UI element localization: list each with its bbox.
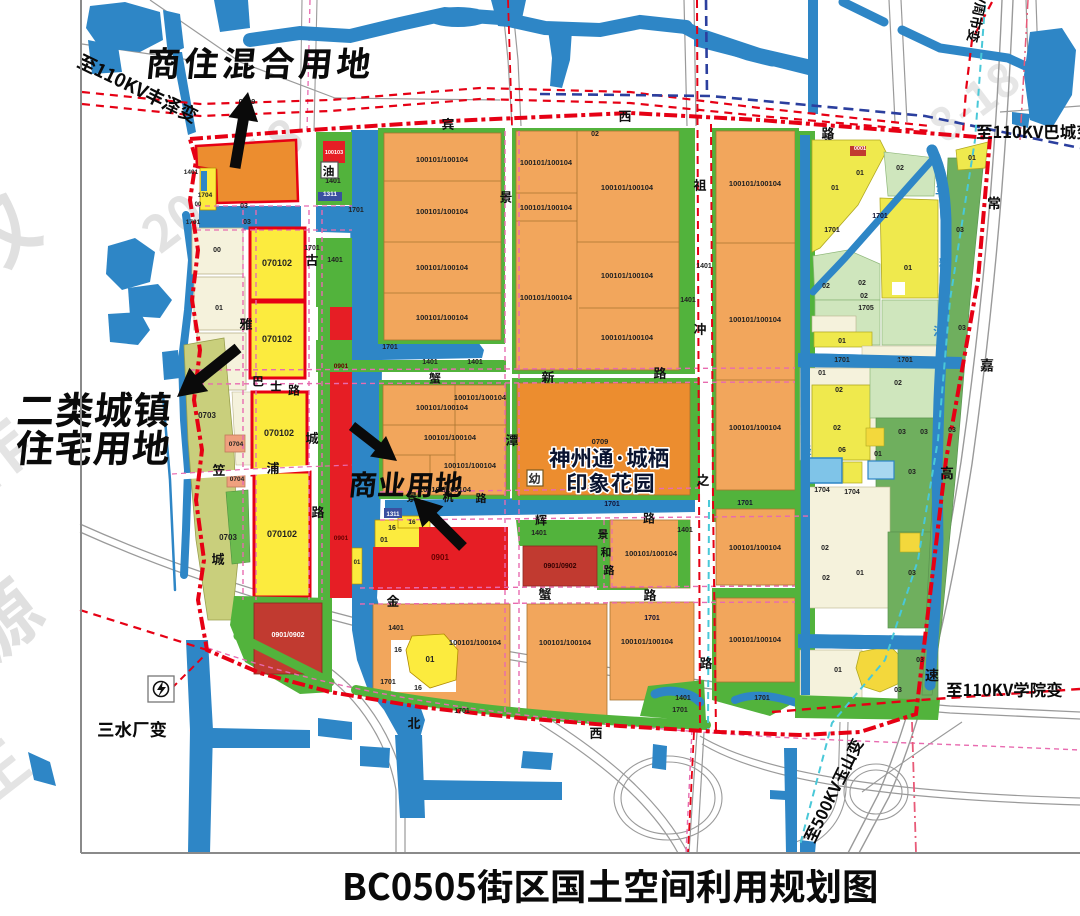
svg-text:100101/100104: 100101/100104 — [416, 403, 469, 412]
svg-text:1701: 1701 — [304, 245, 320, 252]
svg-text:0704: 0704 — [230, 476, 245, 483]
svg-text:00: 00 — [213, 247, 221, 254]
svg-text:03: 03 — [956, 227, 964, 234]
svg-text:1401: 1401 — [680, 297, 696, 304]
svg-text:1401: 1401 — [675, 695, 691, 702]
svg-text:1701: 1701 — [824, 227, 840, 234]
svg-text:1311: 1311 — [386, 512, 400, 518]
svg-text:03: 03 — [908, 469, 916, 476]
svg-text:100101/100104: 100101/100104 — [416, 313, 469, 322]
svg-text:03: 03 — [243, 219, 251, 226]
svg-text:01: 01 — [380, 537, 388, 544]
svg-text:01: 01 — [856, 570, 864, 577]
svg-text:01: 01 — [818, 370, 826, 377]
svg-text:02: 02 — [896, 165, 904, 172]
svg-text:100101/100104: 100101/100104 — [729, 635, 782, 644]
svg-text:100101/100104: 100101/100104 — [454, 393, 507, 402]
svg-text:03: 03 — [908, 570, 916, 577]
svg-text:16: 16 — [394, 647, 402, 654]
svg-text:1401: 1401 — [388, 625, 404, 632]
svg-text:1401: 1401 — [677, 527, 693, 534]
svg-text:1701: 1701 — [380, 679, 396, 686]
svg-text:1701: 1701 — [872, 213, 888, 220]
svg-text:100101/100104: 100101/100104 — [601, 271, 654, 280]
svg-text:02: 02 — [860, 293, 868, 300]
svg-text:1401: 1401 — [467, 359, 483, 366]
svg-text:070102: 070102 — [262, 334, 292, 344]
svg-text:03: 03 — [948, 427, 956, 434]
svg-text:0901: 0901 — [431, 553, 449, 562]
svg-text:1401: 1401 — [184, 169, 199, 176]
svg-text:03: 03 — [958, 325, 966, 332]
svg-text:0703: 0703 — [219, 533, 237, 542]
svg-text:1701: 1701 — [737, 500, 753, 507]
svg-text:1701: 1701 — [672, 707, 688, 714]
svg-text:100101/100104: 100101/100104 — [729, 423, 782, 432]
svg-text:1401: 1401 — [325, 178, 341, 185]
svg-text:1705: 1705 — [858, 305, 874, 312]
svg-text:1701: 1701 — [186, 219, 201, 226]
svg-text:1701: 1701 — [604, 501, 620, 508]
svg-text:100101/100104: 100101/100104 — [729, 179, 782, 188]
svg-text:100101/100104: 100101/100104 — [520, 293, 573, 302]
svg-text:1701: 1701 — [754, 695, 770, 702]
svg-text:02: 02 — [833, 425, 841, 432]
svg-text:01: 01 — [831, 185, 839, 192]
svg-text:01: 01 — [856, 170, 864, 177]
svg-text:16: 16 — [414, 685, 422, 692]
svg-text:1701: 1701 — [644, 615, 660, 622]
svg-text:02: 02 — [591, 131, 599, 138]
svg-text:02: 02 — [821, 545, 829, 552]
svg-text:1704: 1704 — [198, 192, 213, 199]
svg-text:03: 03 — [898, 429, 906, 436]
svg-text:100101/100104: 100101/100104 — [424, 433, 477, 442]
svg-text:100101/100104: 100101/100104 — [416, 155, 469, 164]
svg-text:1704: 1704 — [844, 489, 860, 496]
svg-text:0704: 0704 — [229, 441, 244, 448]
svg-text:00: 00 — [195, 202, 202, 208]
svg-text:0901: 0901 — [334, 363, 349, 370]
svg-text:100101/100104: 100101/100104 — [729, 543, 782, 552]
svg-text:01: 01 — [874, 451, 882, 458]
svg-text:1311: 1311 — [323, 191, 337, 198]
svg-text:100101/100104: 100101/100104 — [444, 461, 497, 470]
svg-text:100101/100104: 100101/100104 — [449, 638, 502, 647]
svg-text:01: 01 — [215, 305, 223, 312]
svg-text:0901: 0901 — [334, 535, 349, 542]
svg-text:0901/0902: 0901/0902 — [271, 632, 304, 639]
svg-text:01: 01 — [968, 155, 976, 162]
svg-text:1701: 1701 — [382, 344, 398, 351]
svg-text:100101/100104: 100101/100104 — [416, 207, 469, 216]
svg-text:1704: 1704 — [814, 487, 830, 494]
svg-text:06: 06 — [838, 447, 846, 454]
svg-text:16: 16 — [388, 525, 396, 532]
svg-text:100101/100104: 100101/100104 — [601, 333, 654, 342]
svg-text:1701: 1701 — [834, 357, 850, 364]
svg-text:100101/100104: 100101/100104 — [539, 638, 592, 647]
svg-text:1401: 1401 — [327, 257, 343, 264]
svg-text:100101/100104: 100101/100104 — [625, 549, 678, 558]
svg-text:03: 03 — [894, 687, 902, 694]
svg-text:100101/100104: 100101/100104 — [416, 263, 469, 272]
svg-text:01: 01 — [354, 560, 361, 566]
svg-text:100101/100104: 100101/100104 — [520, 203, 573, 212]
svg-text:02: 02 — [858, 280, 866, 287]
svg-text:070102: 070102 — [264, 428, 294, 438]
svg-text:01: 01 — [904, 263, 912, 272]
svg-text:03: 03 — [240, 203, 248, 210]
svg-text:02: 02 — [835, 387, 843, 394]
svg-text:02: 02 — [822, 283, 830, 290]
svg-text:16: 16 — [408, 519, 416, 526]
svg-text:01: 01 — [426, 655, 435, 664]
svg-text:1401: 1401 — [422, 359, 438, 366]
svg-text:100101/100104: 100101/100104 — [601, 183, 654, 192]
svg-text:0901/0902: 0901/0902 — [543, 563, 576, 570]
svg-text:1701: 1701 — [348, 207, 364, 214]
svg-text:070102: 070102 — [262, 258, 292, 268]
svg-text:1701: 1701 — [454, 708, 470, 715]
svg-text:1401: 1401 — [696, 263, 712, 270]
svg-text:03: 03 — [920, 429, 928, 436]
svg-text:100101/100104: 100101/100104 — [520, 158, 573, 167]
svg-text:070102: 070102 — [267, 529, 297, 539]
svg-text:1401: 1401 — [531, 530, 547, 537]
svg-text:100101/100104: 100101/100104 — [621, 637, 674, 646]
svg-text:02: 02 — [822, 575, 830, 582]
svg-text:03: 03 — [916, 657, 924, 664]
svg-text:01: 01 — [838, 338, 846, 345]
svg-text:100103: 100103 — [325, 150, 343, 156]
svg-text:02: 02 — [894, 380, 902, 387]
svg-text:100101/100104: 100101/100104 — [729, 315, 782, 324]
svg-text:0001: 0001 — [854, 146, 866, 152]
svg-text:0703: 0703 — [198, 411, 216, 420]
svg-text:01: 01 — [834, 667, 842, 674]
svg-text:0709: 0709 — [592, 437, 609, 446]
